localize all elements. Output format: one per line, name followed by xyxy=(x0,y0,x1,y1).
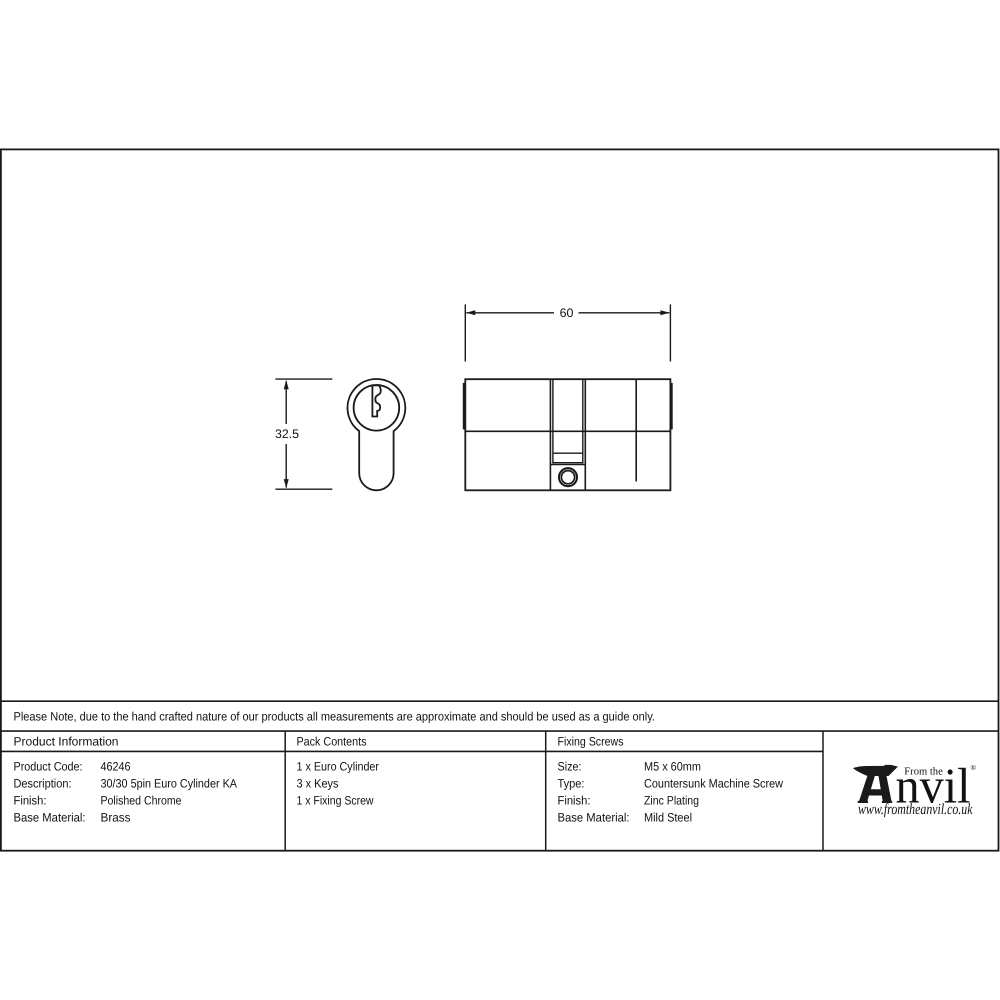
svg-text:Finish:: Finish: xyxy=(558,794,591,808)
svg-text:Finish:: Finish: xyxy=(14,794,47,808)
svg-text:1 x Fixing Screw: 1 x Fixing Screw xyxy=(297,794,374,808)
svg-text:M5 x 60mm: M5 x 60mm xyxy=(644,760,701,774)
svg-text:Type:: Type: xyxy=(558,777,585,791)
svg-text:Zinc Plating: Zinc Plating xyxy=(644,794,699,808)
svg-text:Polished Chrome: Polished Chrome xyxy=(101,794,182,808)
svg-text:30/30 5pin Euro Cylinder KA: 30/30 5pin Euro Cylinder KA xyxy=(101,777,238,791)
svg-text:60: 60 xyxy=(560,306,574,320)
svg-text:Product Information: Product Information xyxy=(14,735,119,749)
svg-text:Countersunk Machine Screw: Countersunk Machine Screw xyxy=(644,777,783,791)
svg-text:Base Material:: Base Material: xyxy=(14,811,86,825)
svg-text:Pack Contents: Pack Contents xyxy=(297,735,367,749)
svg-text:Mild Steel: Mild Steel xyxy=(644,811,692,825)
svg-text:1 x Euro Cylinder: 1 x Euro Cylinder xyxy=(297,760,380,774)
svg-text:Product Code:: Product Code: xyxy=(14,760,83,774)
svg-text:www.fromtheanvil.co.uk: www.fromtheanvil.co.uk xyxy=(858,801,973,818)
svg-text:Please Note, due to the hand c: Please Note, due to the hand crafted nat… xyxy=(14,710,656,724)
svg-text:Size:: Size: xyxy=(558,760,582,774)
svg-text:3 x Keys: 3 x Keys xyxy=(297,777,339,791)
svg-text:®: ® xyxy=(970,763,976,772)
svg-text:Fixing Screws: Fixing Screws xyxy=(558,735,624,749)
svg-text:46246: 46246 xyxy=(101,760,131,774)
svg-text:Brass: Brass xyxy=(101,811,131,825)
svg-text:Description:: Description: xyxy=(14,777,72,791)
svg-text:Base Material:: Base Material: xyxy=(558,811,630,825)
svg-text:32.5: 32.5 xyxy=(275,427,299,441)
